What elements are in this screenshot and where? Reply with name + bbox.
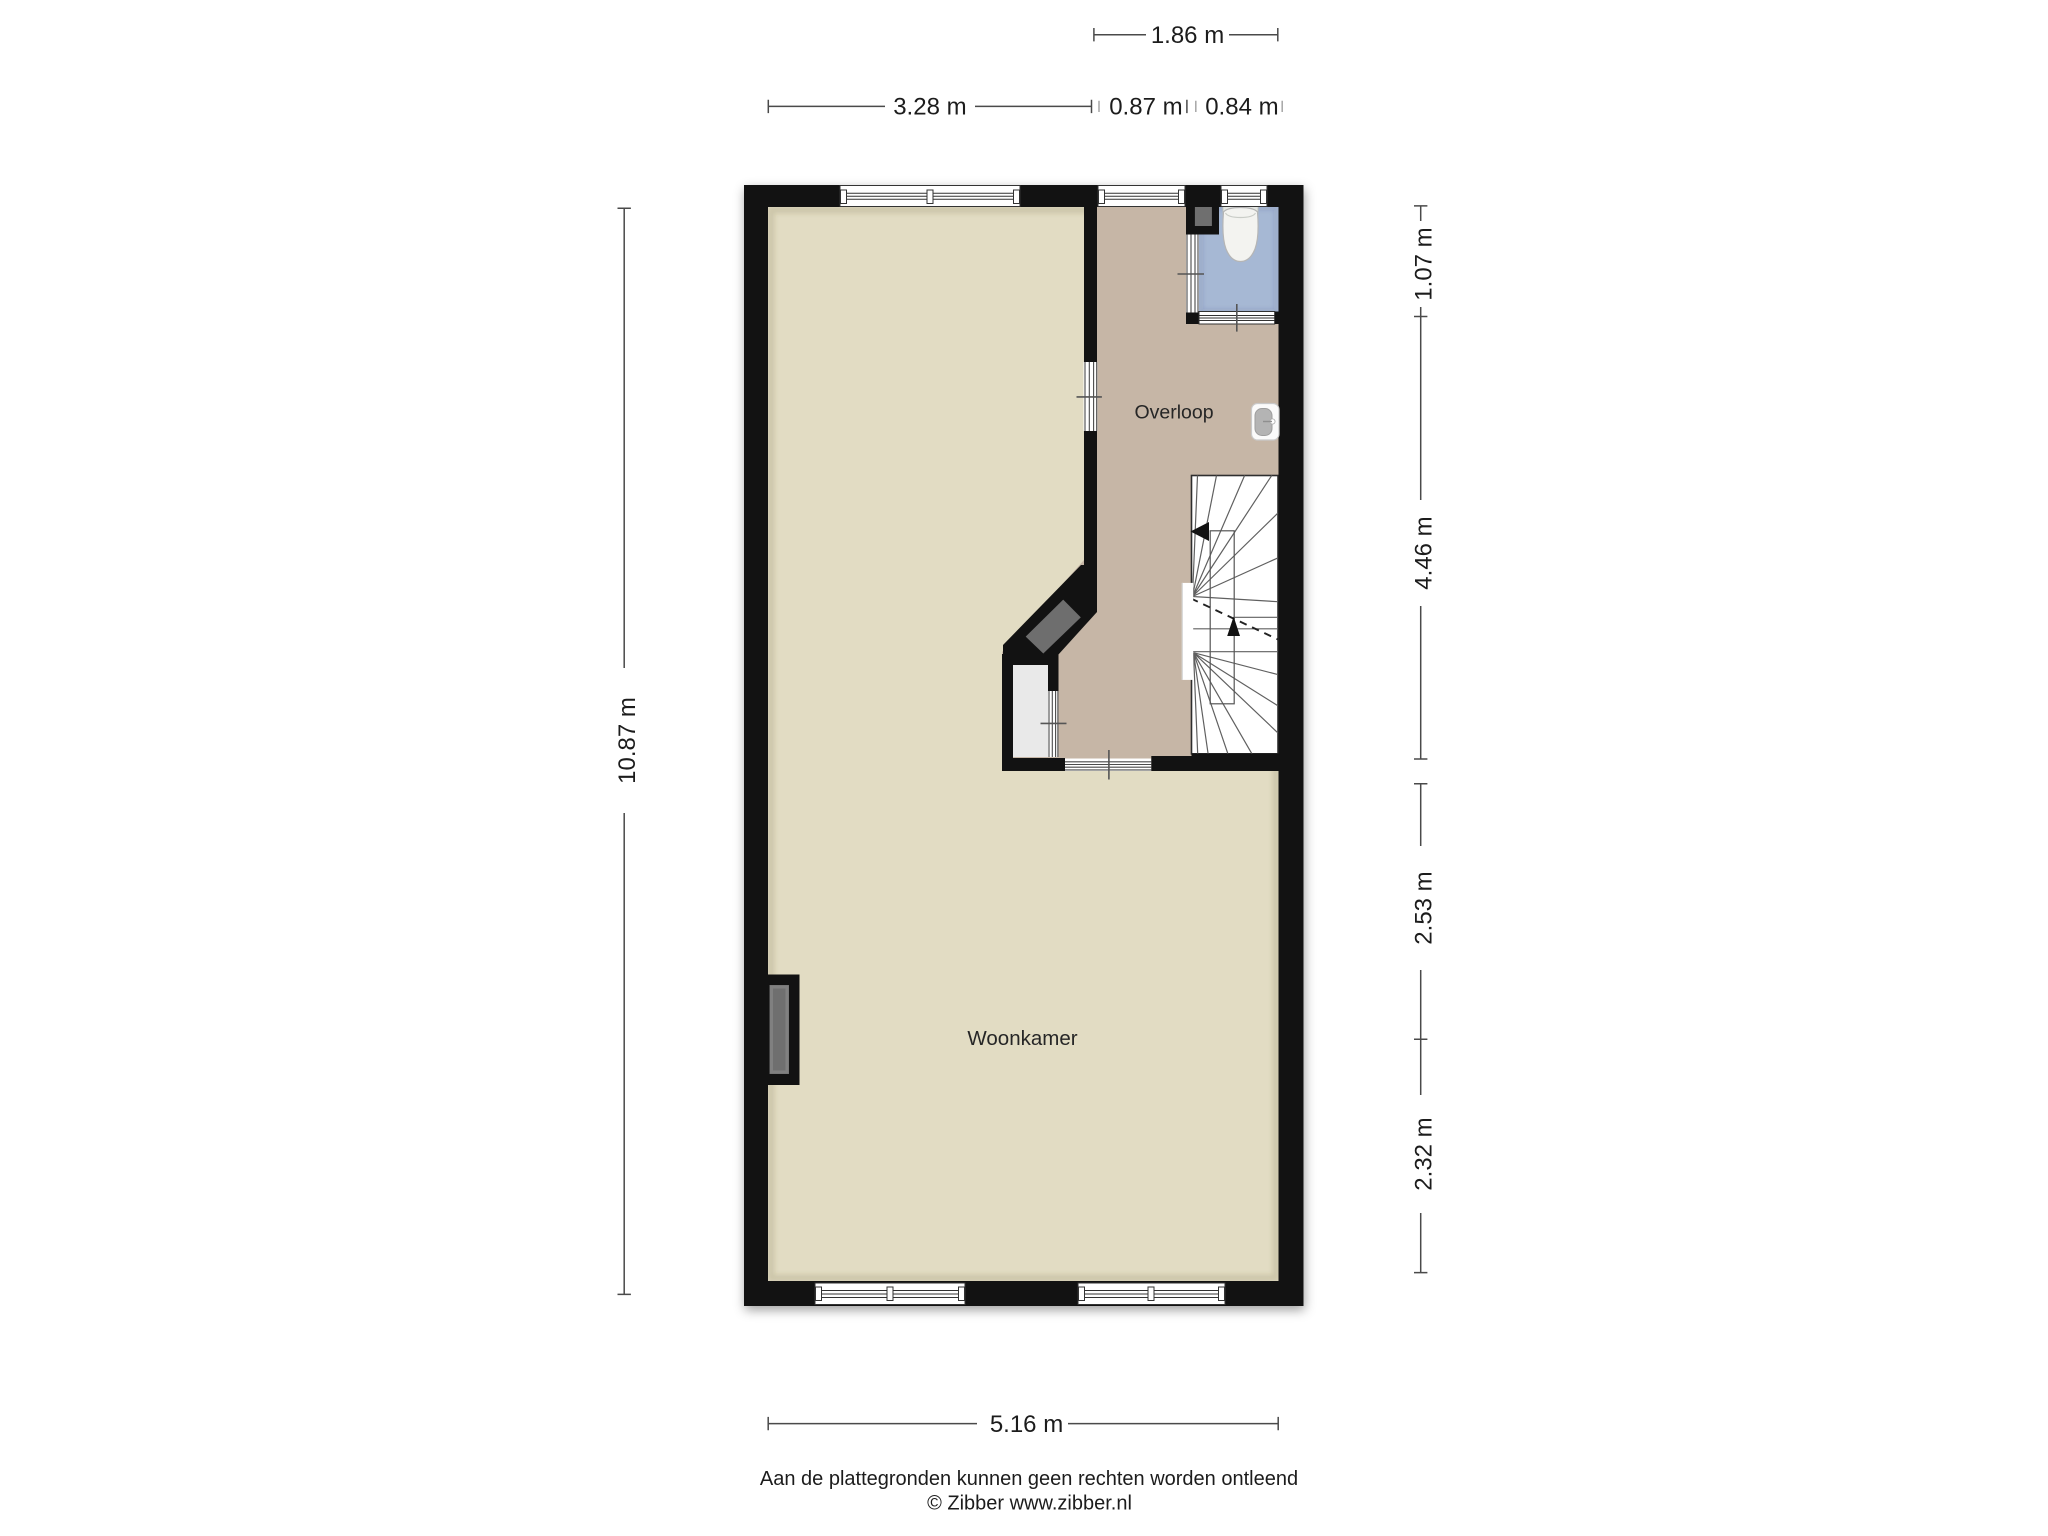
svg-text:© Zibber www.zibber.nl: © Zibber www.zibber.nl — [927, 1493, 1132, 1515]
svg-text:Overloop: Overloop — [1134, 402, 1213, 424]
svg-text:1.86 m: 1.86 m — [1151, 22, 1224, 49]
svg-text:0.84 m: 0.84 m — [1205, 94, 1278, 121]
svg-text:1.07 m: 1.07 m — [1411, 227, 1438, 300]
svg-text:Aan de plattegronden kunnen ge: Aan de plattegronden kunnen geen rechten… — [760, 1468, 1298, 1490]
svg-text:0.87 m: 0.87 m — [1109, 94, 1182, 121]
svg-text:5.16 m: 5.16 m — [990, 1411, 1063, 1438]
svg-text:4.46 m: 4.46 m — [1411, 516, 1438, 589]
svg-text:2.53 m: 2.53 m — [1411, 871, 1438, 944]
svg-text:2.32 m: 2.32 m — [1411, 1117, 1438, 1190]
svg-text:Woonkamer: Woonkamer — [967, 1027, 1077, 1050]
svg-text:3.28 m: 3.28 m — [893, 94, 966, 121]
svg-text:10.87 m: 10.87 m — [614, 697, 641, 784]
